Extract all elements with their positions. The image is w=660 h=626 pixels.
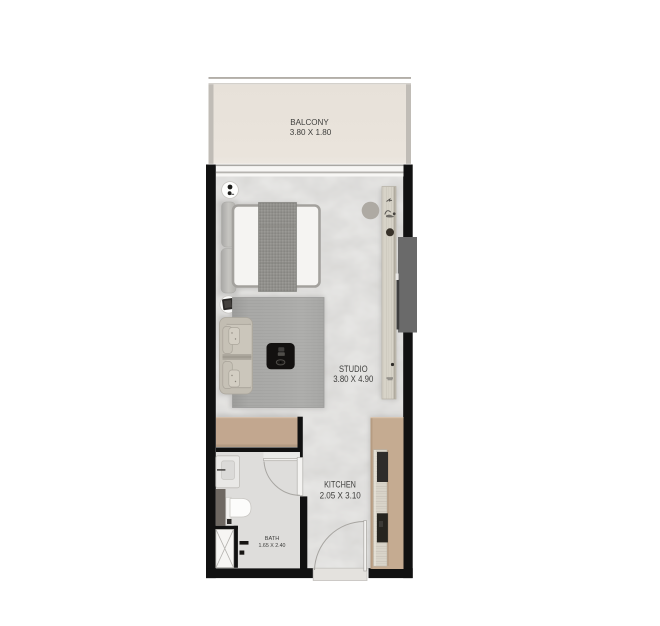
svg-text:3.80 X 4.90: 3.80 X 4.90 (333, 374, 373, 384)
svg-text:BATH: BATH (265, 536, 280, 542)
svg-text:1.65 X 2.40: 1.65 X 2.40 (259, 543, 286, 549)
svg-text:2.05 X 3.10: 2.05 X 3.10 (320, 490, 361, 500)
svg-text:STUDIO: STUDIO (339, 364, 368, 374)
svg-text:3.80 X 1.80: 3.80 X 1.80 (290, 127, 332, 137)
svg-text:BALCONY: BALCONY (290, 117, 329, 127)
svg-text:KITCHEN: KITCHEN (324, 480, 356, 490)
